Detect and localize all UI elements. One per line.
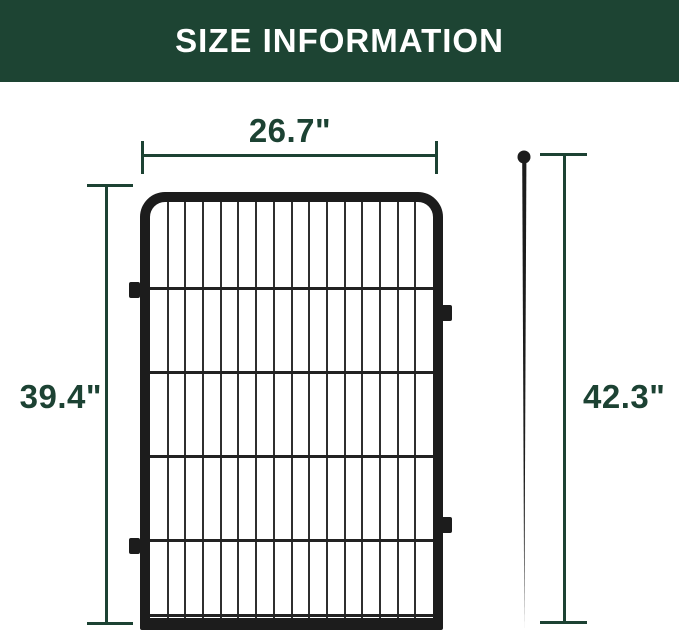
fence-horizontal-wire <box>150 614 433 617</box>
header-banner: SIZE INFORMATION <box>0 0 679 82</box>
fence-vertical-wire <box>308 202 310 618</box>
fence-vertical-wire <box>220 202 222 618</box>
fence-horizontal-wire <box>150 539 433 542</box>
fence-panel-interior <box>150 202 433 618</box>
panel-height-label: 39.4" <box>12 378 102 416</box>
stake-height-tick-top <box>540 153 587 156</box>
width-dimension-tick-left <box>141 141 144 174</box>
stake-height-label: 42.3" <box>583 378 665 416</box>
fence-vertical-wire <box>361 202 363 618</box>
size-information-infographic: SIZE INFORMATION 26.7" 39.4" 42.3" <box>0 0 679 631</box>
page-title: SIZE INFORMATION <box>175 22 504 60</box>
stake-height-dimension-line <box>563 154 566 624</box>
fence-horizontal-wire <box>150 287 433 290</box>
panel-height-tick-top <box>87 184 133 187</box>
fence-panel-illustration <box>140 192 443 630</box>
fence-connector-tab <box>129 282 140 298</box>
fence-vertical-wire <box>379 202 381 618</box>
stake-shaft <box>522 161 526 628</box>
fence-vertical-wire <box>344 202 346 618</box>
fence-vertical-wire <box>414 202 416 618</box>
width-dimension-line <box>142 154 438 157</box>
width-dimension-tick-right <box>435 141 438 174</box>
stake-height-tick-bottom <box>540 621 587 624</box>
fence-vertical-wire <box>326 202 328 618</box>
ground-stake-illustration <box>510 145 542 631</box>
panel-width-label: 26.7" <box>142 112 438 150</box>
fence-connector-tab <box>129 538 140 554</box>
fence-vertical-wire <box>167 202 169 618</box>
panel-height-dimension-line <box>105 185 108 625</box>
fence-connector-tab <box>441 305 452 321</box>
fence-vertical-wire <box>255 202 257 618</box>
panel-height-tick-bottom <box>87 622 133 625</box>
fence-vertical-wire <box>291 202 293 618</box>
fence-vertical-wire <box>202 202 204 618</box>
fence-connector-tab <box>441 517 452 533</box>
fence-vertical-wire <box>273 202 275 618</box>
fence-vertical-wire <box>184 202 186 618</box>
fence-vertical-wire <box>237 202 239 618</box>
fence-horizontal-wire <box>150 371 433 374</box>
fence-horizontal-wire <box>150 455 433 458</box>
fence-vertical-wire <box>397 202 399 618</box>
